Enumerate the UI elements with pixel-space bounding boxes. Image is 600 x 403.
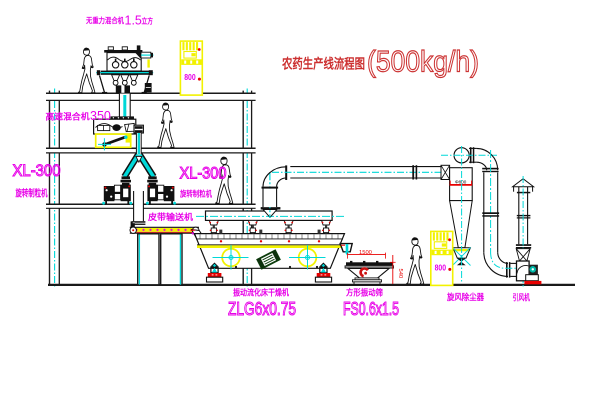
svg-text:Φ800: Φ800 <box>455 180 467 185</box>
svg-text:旋转制粒机: 旋转制粒机 <box>15 188 48 200</box>
svg-text:XL-300: XL-300 <box>180 164 227 183</box>
svg-text:旋风除尘器: 旋风除尘器 <box>446 292 484 302</box>
svg-text:皮带输送机: 皮带输送机 <box>147 212 194 222</box>
svg-text:ZLG6x0.75: ZLG6x0.75 <box>228 299 296 319</box>
svg-text:(500kg/h): (500kg/h) <box>367 46 479 79</box>
svg-text:FS0.6x1.5: FS0.6x1.5 <box>343 299 399 319</box>
svg-text:旋转制粒机: 旋转制粒机 <box>179 189 212 199</box>
svg-text:高速混合机: 高速混合机 <box>46 112 91 122</box>
svg-text:农药生产线流程图: 农药生产线流程图 <box>281 56 365 72</box>
svg-text:方形振动筛: 方形振动筛 <box>346 288 383 298</box>
svg-text:振动流化床干燥机: 振动流化床干燥机 <box>233 288 289 298</box>
svg-text:引风机: 引风机 <box>513 292 531 302</box>
svg-text:无重力混合机: 无重力混合机 <box>85 15 124 25</box>
svg-text:540: 540 <box>397 269 403 279</box>
svg-text:1.5: 1.5 <box>125 14 142 28</box>
svg-text:立方: 立方 <box>142 16 154 26</box>
svg-text:350: 350 <box>90 109 111 123</box>
svg-text:1500: 1500 <box>359 250 372 256</box>
svg-text:XL-300: XL-300 <box>13 161 61 180</box>
